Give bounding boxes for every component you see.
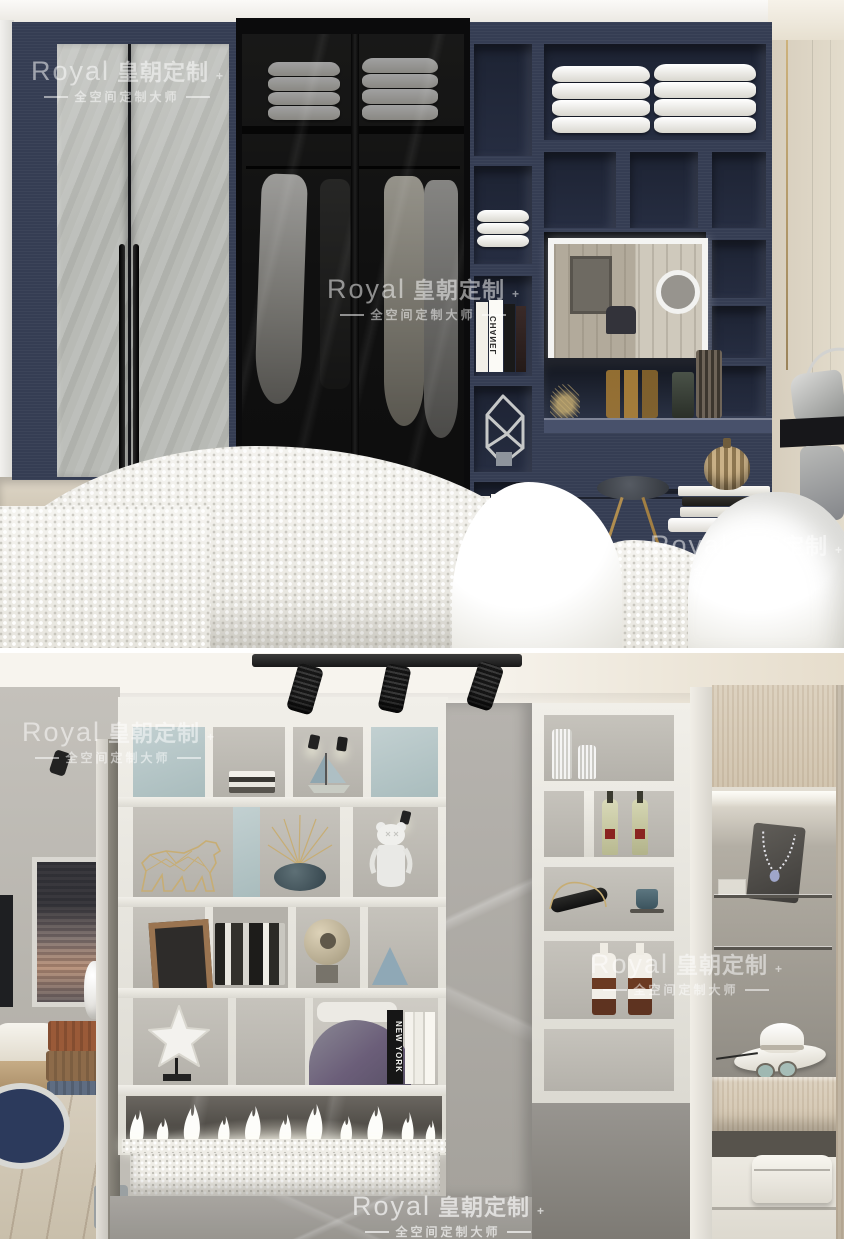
- gold-wire-bear-sculpture: [136, 833, 228, 897]
- led-mirror: [548, 238, 708, 366]
- cell-r2c4: [368, 907, 438, 988]
- lower-shelf-line: [712, 1207, 844, 1210]
- book-dark-red: [516, 306, 526, 372]
- sailboat-model: [305, 751, 353, 797]
- cubby-towels: [474, 166, 532, 264]
- ribbed-gold-vase: [704, 446, 750, 490]
- white-books-row: [405, 1012, 435, 1084]
- perfume-bottles: [606, 370, 658, 418]
- frosted-glass-cup-short: [578, 745, 596, 779]
- top-towel-shelf: [544, 44, 766, 140]
- vanity-niche: [544, 358, 706, 420]
- book-spine-chanel: CHANEL: [489, 300, 503, 372]
- right-wall-gold-trim: [786, 40, 788, 370]
- lower-recess: [712, 1131, 836, 1157]
- marble-door-handle-left: [119, 244, 125, 478]
- cell-r3c2: [236, 998, 305, 1085]
- tv-screen-edge: [0, 895, 13, 1007]
- sunglasses-lens-right: [778, 1061, 797, 1078]
- sphere-core: [320, 933, 336, 949]
- side-cubby-1: [712, 240, 766, 298]
- mirror-stool-reflection: [606, 306, 636, 334]
- fireplace-pebble-base: [130, 1153, 440, 1197]
- cell-r2c2-books: [213, 907, 288, 988]
- cell-r1c1: [133, 807, 233, 897]
- magnifier-mirror: [656, 270, 700, 314]
- gray-marble-panel: [446, 703, 532, 1197]
- shelf-band-1: [118, 797, 448, 807]
- cubby-sculpture: [474, 386, 532, 472]
- book-white: [476, 302, 488, 372]
- necklace-display-board: [746, 822, 806, 903]
- mug-saucer: [630, 909, 664, 913]
- white-display-column: [532, 703, 700, 1103]
- white-column-base: [532, 1103, 700, 1239]
- marble-door-handle-right: [133, 244, 139, 478]
- cell-r3c3-room-view: NEW YORK: [313, 998, 438, 1085]
- cell-r0c4: [371, 727, 438, 797]
- pearl-necklace: [752, 829, 801, 885]
- frosted-glass-cup-tall: [552, 729, 572, 779]
- cell-r3c1: [133, 998, 228, 1085]
- oak-right-edge: [836, 685, 844, 1239]
- vanity-stool-seat: [597, 476, 669, 500]
- folded-towels-small: [477, 210, 529, 260]
- col-cell-3: [544, 867, 674, 931]
- book-black: [504, 304, 515, 372]
- oak-upper-cabinet: [712, 685, 844, 787]
- cubby-books-upper: CHANEL: [474, 276, 532, 376]
- storage-crate-1: [48, 1021, 102, 1051]
- dark-cosmetic-bottles: [672, 372, 694, 418]
- teal-mug: [636, 889, 658, 909]
- makeup-brush-cup: [696, 350, 722, 418]
- sphere-base: [316, 965, 338, 983]
- cabinet-left-pillar: [690, 687, 712, 1239]
- mirror-art-reflection: [570, 256, 612, 314]
- wine-label-red: [635, 829, 645, 839]
- books-flat-stack: [229, 771, 275, 793]
- wine-bottle-2: [632, 799, 648, 855]
- cell-r0c1: [133, 727, 205, 797]
- bed-knit-blanket-left: [0, 506, 210, 648]
- wine-bottle-neck: [607, 791, 613, 803]
- cubby-row-c: [712, 152, 766, 228]
- shelf-band-3: [118, 988, 448, 998]
- towel-stack-right: [654, 64, 756, 136]
- wine-label-red: [605, 829, 615, 839]
- desk-edge-black: [780, 416, 844, 447]
- gold-wire-decor: [550, 384, 580, 418]
- col-cell-1: [544, 715, 674, 781]
- recessed-downlight: [308, 734, 321, 750]
- cell-r0c3: [293, 727, 363, 797]
- col-divider: [584, 791, 594, 857]
- hat-box-lid-seam: [754, 1169, 830, 1171]
- fireplace-mantel-shelf: [118, 1085, 448, 1096]
- col-cell-5: [544, 1029, 674, 1091]
- glass-shelf-2: [714, 947, 832, 950]
- photo-living-room-shelving: NEW YORK: [0, 653, 844, 1239]
- cubby-row-a: [544, 152, 616, 228]
- cell-r2c3: [296, 907, 360, 988]
- starfish-stand-base: [163, 1074, 191, 1081]
- vase-stem: [723, 438, 731, 448]
- wardrobe-marble-door-right: [131, 44, 229, 477]
- niche-led-glow: [712, 791, 836, 807]
- dark-teal-vase: [274, 863, 326, 891]
- picture-frame: [148, 919, 213, 999]
- oak-counter-drawer: [712, 1077, 844, 1131]
- gold-wire-spray-decor: [266, 815, 334, 867]
- hat-band: [760, 1045, 804, 1050]
- bed-pillows-through-shelf: [317, 1002, 397, 1022]
- book-spine-new-york: NEW YORK: [387, 1010, 403, 1084]
- cell-r2c1: [133, 907, 205, 988]
- photo-bedroom-wardrobe: CHANEL CHANEL: [0, 0, 844, 648]
- wine-bottle-neck: [637, 791, 643, 803]
- glass-shelf-1: [714, 895, 832, 898]
- wardrobe-marble-door-left: [57, 44, 128, 477]
- geometric-sculpture: [476, 390, 530, 470]
- col-cell-4: [544, 941, 674, 1019]
- col-cell-2: [544, 791, 674, 857]
- blue-triangle-decor: [372, 947, 408, 985]
- white-starfish-decor: [143, 1004, 215, 1070]
- cell-r0c2: [213, 727, 285, 797]
- fireplace-crystal-bed: [122, 1139, 446, 1153]
- liquor-bottle-2: [628, 953, 652, 1015]
- cubby-empty-top: [474, 44, 532, 156]
- wall-pillar: [96, 739, 108, 1239]
- bottle-cap: [636, 943, 644, 955]
- gold-wire-bottle-holder: [546, 875, 610, 915]
- towel-stack-left: [552, 66, 650, 136]
- book-row: [215, 923, 285, 985]
- bottle-cap: [600, 943, 608, 955]
- cell-r1c3: [353, 807, 438, 897]
- white-hat-box: [752, 1155, 832, 1203]
- divider-sage: [233, 807, 260, 897]
- marble-door-gap: [128, 44, 131, 477]
- cubby-row-b: [630, 152, 698, 228]
- photo-separator: [0, 648, 844, 653]
- lower-white-cabinet: [712, 1157, 844, 1239]
- poster-two-interior-renders: CHANEL CHANEL: [0, 0, 844, 1239]
- wine-bottle-1: [602, 799, 618, 855]
- storage-crate-2: [46, 1051, 102, 1081]
- liquor-bottle-1: [592, 953, 616, 1015]
- cell-r1c2: [260, 807, 340, 897]
- display-niche: [712, 787, 836, 1077]
- shelf-band-2: [118, 897, 448, 907]
- recessed-downlight: [336, 736, 348, 751]
- white-cartoon-figurine: [369, 819, 413, 899]
